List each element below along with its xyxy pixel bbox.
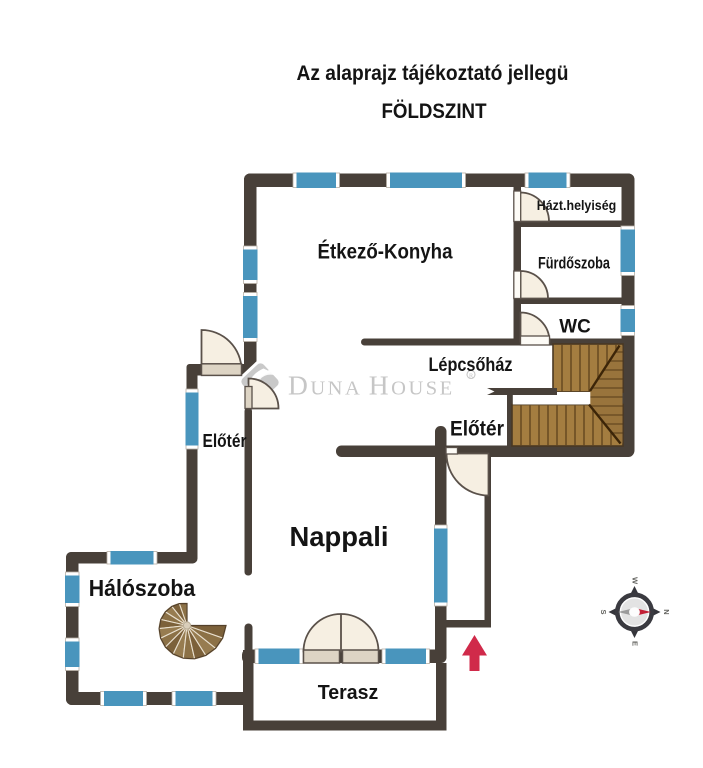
svg-text:FÖLDSZINT: FÖLDSZINT [382, 98, 487, 123]
svg-text:N: N [662, 609, 671, 614]
svg-text:Előtér: Előtér [450, 417, 505, 441]
svg-text:W: W [631, 577, 640, 585]
svg-text:Fürdőszoba: Fürdőszoba [538, 255, 611, 273]
svg-text:Előtér: Előtér [203, 430, 248, 451]
svg-text:Hálószoba: Hálószoba [89, 575, 196, 601]
svg-text:Lépcsőház: Lépcsőház [429, 354, 513, 376]
svg-text:Házt.helyiség: Házt.helyiség [537, 197, 617, 213]
svg-text:Terasz: Terasz [318, 681, 379, 704]
svg-text:Az alaprajz tájékoztató jelleg: Az alaprajz tájékoztató jellegü [297, 62, 569, 85]
svg-text:E: E [631, 641, 640, 646]
svg-text:Nappali: Nappali [290, 521, 389, 552]
svg-text:S: S [599, 609, 608, 614]
svg-text:WC: WC [559, 316, 591, 338]
svg-text:Étkező-Konyha: Étkező-Konyha [318, 239, 454, 264]
